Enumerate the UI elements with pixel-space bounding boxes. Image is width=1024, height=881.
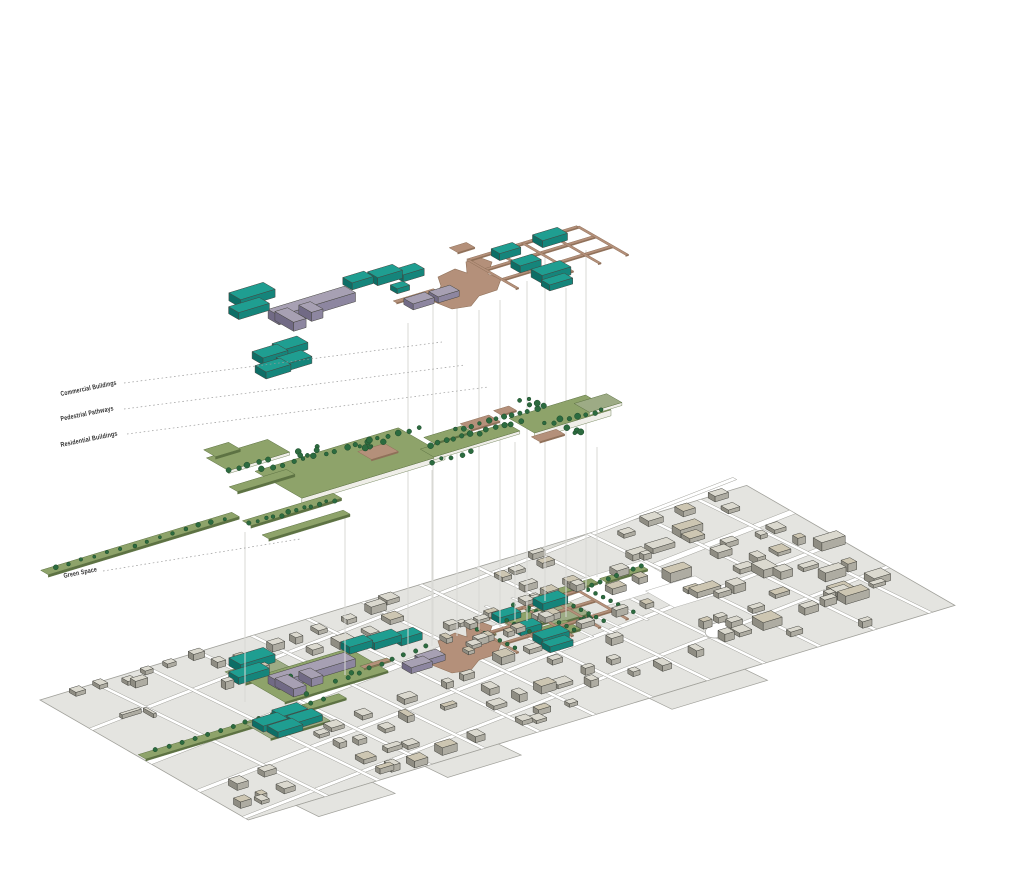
leader-pathways: [124, 365, 465, 409]
diagram-canvas: Commercial Buildings Pedestrial Pathways…: [0, 0, 1024, 881]
label-pedestrial-pathways: Pedestrial Pathways: [60, 405, 114, 423]
buildings-pathways-layer: [229, 226, 629, 379]
label-commercial-buildings: Commercial Buildings: [60, 380, 117, 398]
leader-residential: [127, 387, 488, 434]
exploded-axonometric-diagram: Commercial Buildings Pedestrial Pathways…: [0, 0, 1024, 881]
label-residential-buildings: Residential Buildings: [60, 431, 118, 449]
